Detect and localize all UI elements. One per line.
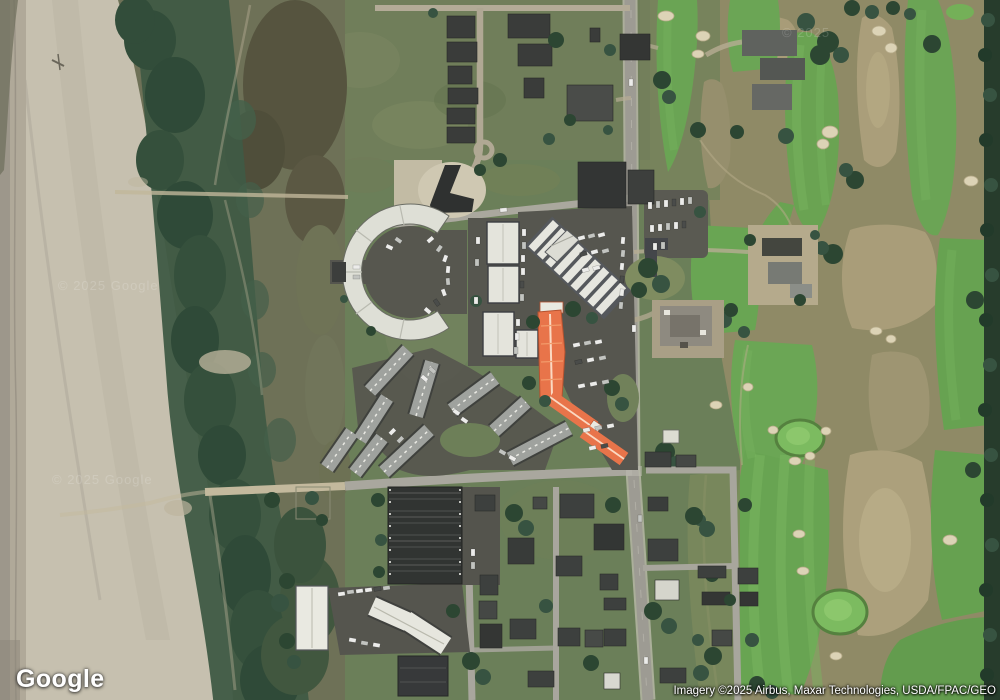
storage-facility bbox=[388, 487, 462, 584]
google-logo[interactable]: Google bbox=[16, 665, 105, 694]
construction-site bbox=[652, 300, 724, 358]
watermark-beach-lower: © 2025 Google bbox=[52, 472, 153, 487]
satellite-map[interactable]: © 2025 Google © 2025 Google © 2025 Googl… bbox=[0, 0, 1000, 700]
watermark-beach-upper: © 2025 Google bbox=[58, 278, 159, 293]
watermark-golf: © 2025 bbox=[782, 25, 830, 40]
satellite-imagery: © 2025 Google © 2025 Google © 2025 bbox=[0, 0, 1000, 700]
imagery-attribution: Imagery ©2025 Airbus, Maxar Technologies… bbox=[673, 685, 996, 697]
